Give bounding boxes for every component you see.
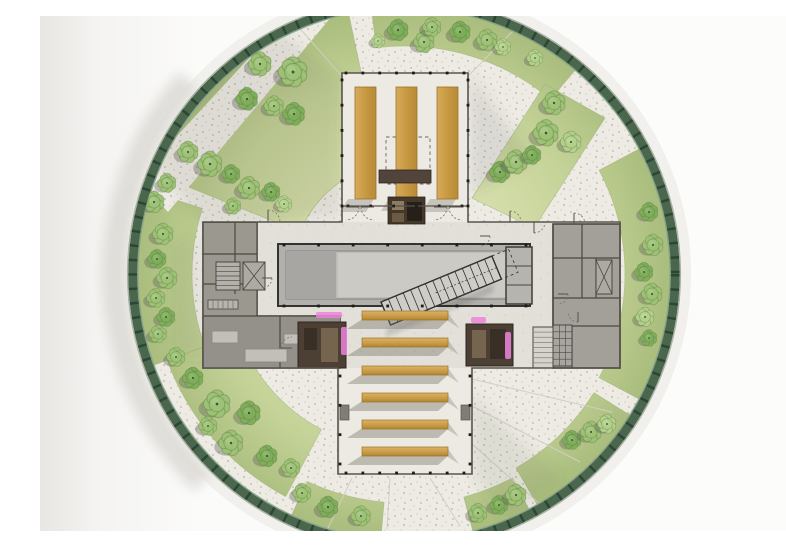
furniture [212,331,238,343]
wood-bench [362,393,448,402]
altar-table [379,170,431,183]
wood-bench [362,420,448,429]
wood-bench [362,447,448,456]
column-marker [467,104,470,107]
column-marker [525,305,528,308]
column-marker [429,72,432,75]
column-marker [412,472,415,475]
column-marker [341,129,344,132]
hall-av-room [506,247,532,304]
wood-bench [362,311,448,320]
wall-pier [340,405,349,420]
column-marker [386,244,389,247]
column-marker [339,433,342,436]
column-marker [412,72,415,75]
wood-deck-strip [437,87,458,199]
column-marker [378,72,381,75]
column-marker [378,472,381,475]
column-marker [446,472,449,475]
hall-left-panel [286,251,336,299]
column-marker [341,154,344,157]
column-marker [283,244,286,247]
service-block-detail [490,329,506,359]
service-block-detail [472,330,486,358]
column-marker [352,244,355,247]
column-marker [429,472,432,475]
column-marker [421,244,424,247]
bench-shadow [347,429,448,438]
wood-bench [362,366,448,375]
column-marker [283,305,286,308]
magenta-accent [341,327,347,355]
column-marker [339,404,342,407]
bench-shadow [347,402,448,411]
column-marker [469,463,472,466]
site-plan-canvas [40,16,786,531]
column-marker [361,72,364,75]
column-marker [317,305,320,308]
site-plan-figure [40,16,786,531]
service-block-detail [304,328,317,350]
column-marker [341,179,344,182]
cabinet-detail [392,213,404,222]
column-marker [455,244,458,247]
column-marker [339,463,342,466]
column-marker [345,72,348,75]
furniture [245,349,287,362]
column-marker [469,375,472,378]
column-marker [490,305,493,308]
magenta-accent [316,312,342,318]
column-marker [469,404,472,407]
column-marker [392,205,395,208]
column-marker [455,305,458,308]
cabinet-detail [407,202,422,221]
column-marker [490,244,493,247]
column-marker [341,79,344,82]
column-marker [341,104,344,107]
column-marker [361,472,364,475]
bench-shadow [347,375,448,384]
column-marker [415,205,418,208]
column-marker [317,244,320,247]
bench-shadow [347,456,448,465]
column-marker [395,472,398,475]
bench-shadow [347,347,448,356]
column-marker [341,205,344,208]
column-marker [467,179,470,182]
column-marker [467,129,470,132]
building-shadow [172,228,203,362]
column-marker [463,472,466,475]
wall-pier [461,405,470,420]
column-marker [467,154,470,157]
column-marker [386,305,389,308]
service-block-detail [321,328,338,362]
column-marker [525,244,528,247]
bench-shadow [347,320,448,329]
column-marker [463,72,466,75]
column-marker [339,375,342,378]
wood-bench [362,338,448,347]
column-marker [467,205,470,208]
wood-deck-strip [355,87,376,199]
column-marker [345,472,348,475]
top-arm [340,87,468,224]
column-marker [421,305,424,308]
column-marker [395,72,398,75]
column-marker [469,433,472,436]
column-marker [467,79,470,82]
magenta-accent [505,332,511,359]
column-marker [352,305,355,308]
column-marker [446,72,449,75]
magenta-accent [471,317,486,323]
